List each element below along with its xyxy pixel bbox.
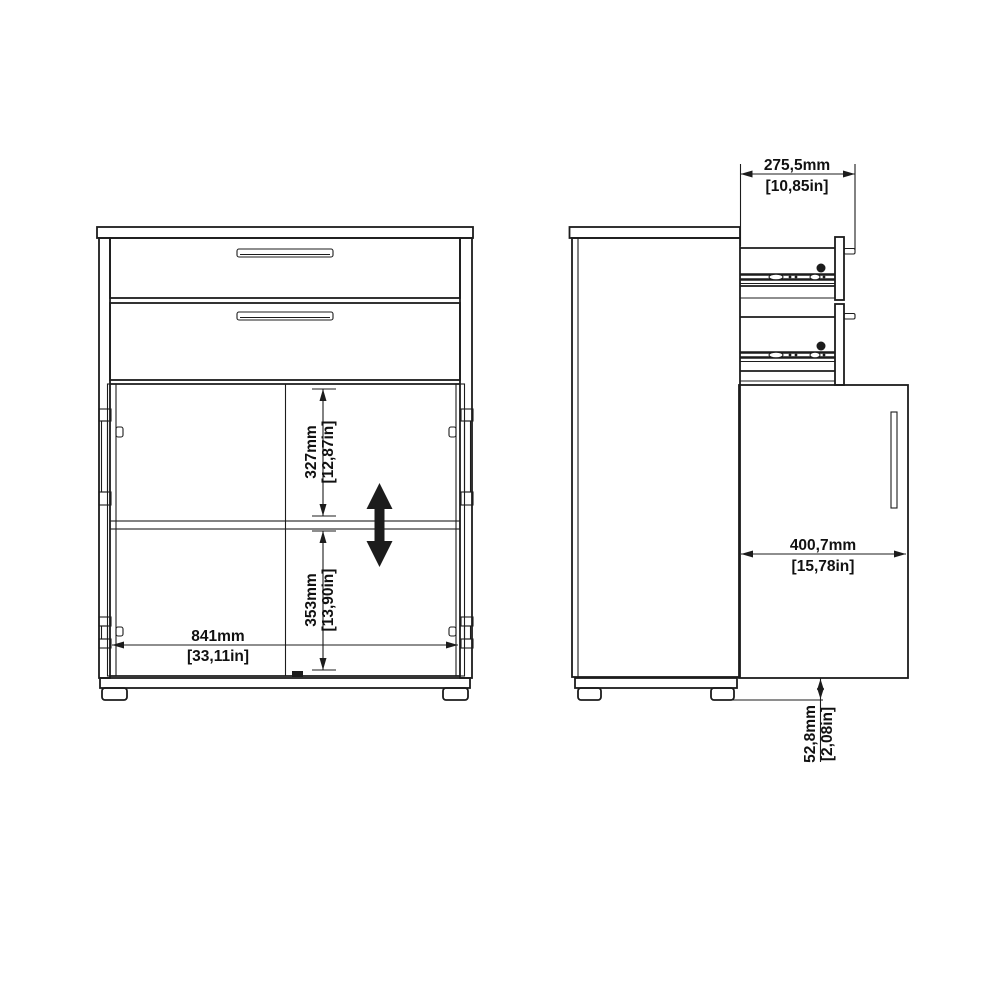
- front-right-foot: [443, 688, 468, 700]
- front-top-panel: [97, 227, 473, 238]
- side-drawer-handle-1-icon: [844, 249, 855, 255]
- dim-400-in: [15,78in]: [792, 558, 855, 575]
- side-plinth: [575, 678, 737, 688]
- drawer-slide-rail-2-icon: [740, 352, 835, 361]
- front-left-foot: [102, 688, 127, 700]
- dim-841-in: [33,11in]: [187, 648, 249, 665]
- left-door-edge: [108, 384, 117, 676]
- cam-lock-2-icon: [817, 342, 826, 351]
- dim-327-mm: 327mm: [303, 425, 320, 478]
- front-plinth: [100, 678, 470, 688]
- dim-353-in: [13,90in]: [320, 569, 337, 632]
- side-body-panel: [572, 238, 740, 677]
- dim-plinth-height: 52,8mm [2,08in]: [802, 678, 836, 763]
- drawer-box-1: [740, 237, 855, 300]
- dim-upper-opening-height: 327mm [12,87in]: [303, 389, 337, 516]
- cabinet-dimension-drawing: 841mm [33,11in] 327mm [12,87in] 353mm [1…: [0, 0, 1000, 1000]
- dim-275-mm: 275,5mm: [764, 157, 830, 174]
- dim-door-width: 400,7mm [15,78in]: [741, 537, 906, 575]
- dim-lower-opening-height: 353mm [13,90in]: [303, 531, 337, 670]
- hinge-top-left-icon: [99, 409, 123, 505]
- hinge-top-right-icon: [449, 409, 473, 505]
- technical-drawing-page: 841mm [33,11in] 327mm [12,87in] 353mm [1…: [0, 0, 1000, 1000]
- drawer-handle-1-icon: [237, 249, 333, 257]
- drawer-front-1: [110, 238, 460, 298]
- side-top-panel: [570, 227, 741, 238]
- dim-400-mm: 400,7mm: [790, 537, 856, 554]
- side-view: 275,5mm [10,85in] 400,7mm [15,78in] 52,8…: [570, 157, 909, 763]
- side-drawer-front-2: [835, 304, 844, 385]
- dim-275-in: [10,85in]: [766, 178, 829, 195]
- drawer-front-2: [110, 303, 460, 380]
- shelf-adjust-arrow-icon: [367, 483, 393, 567]
- drawer-slide-rail-1-icon: [740, 274, 835, 283]
- drawer-handle-2-icon: [237, 312, 333, 320]
- dim-52-mm: 52,8mm: [802, 705, 819, 763]
- side-door-handle-icon: [891, 412, 897, 508]
- drawer-box-2: [740, 304, 855, 385]
- cam-lock-1-icon: [817, 264, 826, 273]
- dim-841-mm: 841mm: [191, 628, 244, 645]
- dim-drawer-extension: 275,5mm [10,85in]: [741, 157, 856, 250]
- side-drawer-front-1: [835, 237, 844, 300]
- side-open-door: [739, 385, 908, 678]
- side-right-foot: [711, 688, 734, 700]
- front-view: 841mm [33,11in] 327mm [12,87in] 353mm [1…: [97, 227, 473, 700]
- hinge-bottom-right-icon: [449, 617, 473, 648]
- side-left-foot: [578, 688, 601, 700]
- dim-353-mm: 353mm: [303, 573, 320, 626]
- front-left-side-panel: [99, 238, 110, 678]
- dim-327-in: [12,87in]: [320, 421, 337, 484]
- dim-52-in: [2,08in]: [819, 707, 836, 761]
- door-catch-icon: [292, 671, 303, 677]
- side-drawer-handle-2-icon: [844, 314, 855, 320]
